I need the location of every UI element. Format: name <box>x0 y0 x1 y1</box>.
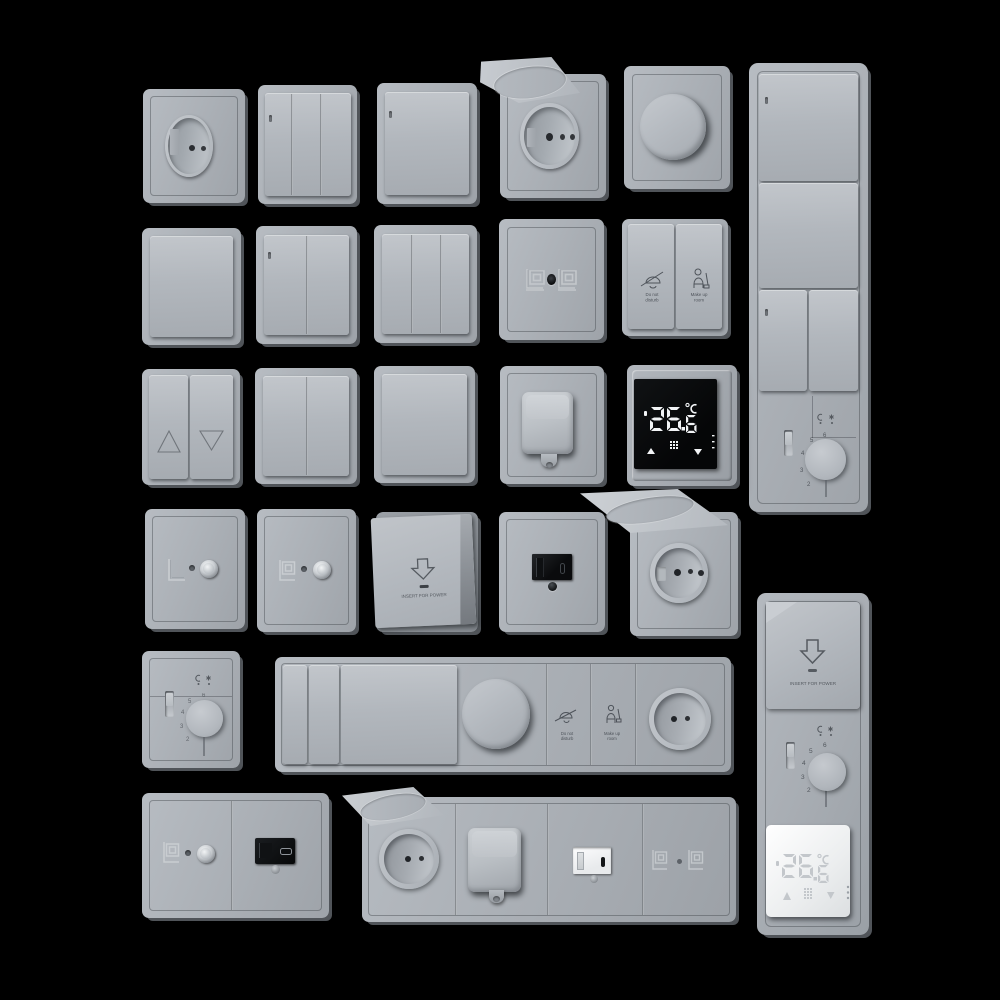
svg-text:3: 3 <box>180 724 184 730</box>
svg-text:5: 5 <box>810 438 814 444</box>
svg-text:room: room <box>607 736 617 741</box>
svg-text:2: 2 <box>186 737 190 743</box>
svg-text:5: 5 <box>188 699 192 705</box>
svg-text:4: 4 <box>802 760 806 767</box>
svg-text:Do not: Do not <box>646 292 660 297</box>
svg-text:4: 4 <box>801 451 805 457</box>
svg-text:3: 3 <box>800 468 804 474</box>
svg-text:3: 3 <box>801 774 805 781</box>
svg-text:6: 6 <box>823 742 827 749</box>
svg-text:2: 2 <box>807 482 811 488</box>
svg-text:disturb: disturb <box>561 736 574 741</box>
svg-text:4: 4 <box>181 710 185 716</box>
svg-text:5: 5 <box>809 748 813 755</box>
svg-text:6: 6 <box>202 693 206 699</box>
svg-text:6: 6 <box>823 433 827 439</box>
svg-text:room: room <box>694 298 704 303</box>
svg-text:disturb: disturb <box>645 298 659 303</box>
svg-text:2: 2 <box>807 787 811 794</box>
svg-text:Make up: Make up <box>691 292 708 297</box>
svg-text:INSERT FOR POWER: INSERT FOR POWER <box>401 592 447 599</box>
svg-text:INSERT FOR POWER: INSERT FOR POWER <box>790 681 837 686</box>
